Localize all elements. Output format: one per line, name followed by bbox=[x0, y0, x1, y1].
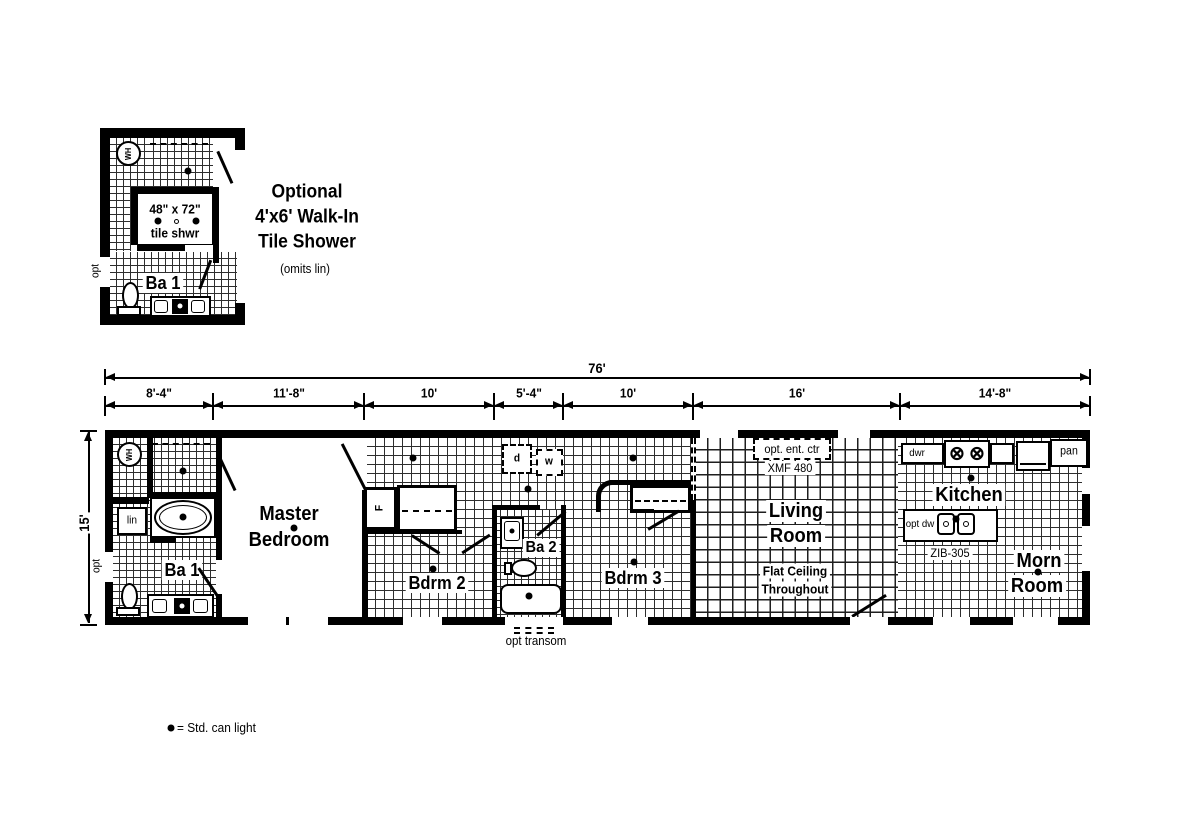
window bbox=[403, 617, 442, 625]
sink-drain-icon bbox=[963, 521, 969, 527]
inset-shower-size-label: 48" x 72" bbox=[147, 202, 204, 217]
wall bbox=[100, 128, 245, 138]
opt-label: opt bbox=[92, 557, 103, 575]
shower-curtain-dashed-line bbox=[152, 443, 210, 445]
dim-height-label: 15' bbox=[77, 512, 91, 533]
inset-subtitle: (omits lin) bbox=[277, 262, 332, 277]
pan-label: pan bbox=[1057, 445, 1080, 459]
window bbox=[1082, 526, 1090, 571]
dim-segment-label-7: 14'-8" bbox=[976, 386, 1014, 401]
optional-wall-opening bbox=[691, 438, 696, 500]
window bbox=[838, 430, 870, 438]
can-light-dot bbox=[953, 516, 960, 523]
tub-icon bbox=[500, 584, 562, 614]
wall bbox=[630, 509, 654, 513]
master-bedroom-label-1: Master bbox=[257, 503, 322, 525]
refrigerator-door-line bbox=[1020, 463, 1046, 465]
dim-arrow bbox=[553, 401, 562, 409]
window bbox=[1082, 468, 1090, 494]
can-light-dot bbox=[193, 218, 200, 225]
dim-arrow bbox=[495, 401, 504, 409]
can-light-dot-inverse bbox=[180, 604, 185, 609]
dim-tick bbox=[1089, 369, 1091, 385]
shower-drain-icon bbox=[174, 219, 179, 224]
closet-rod-dashed-line bbox=[402, 510, 452, 512]
can-light-dot bbox=[185, 168, 192, 175]
xmf-model-label: XMF 480 bbox=[765, 461, 815, 475]
can-light-dot bbox=[180, 468, 187, 475]
inset-ba1-room-label: Ba 1 bbox=[143, 273, 184, 293]
can-light-dot-inverse bbox=[178, 304, 183, 309]
inset-title-line-1: Optional bbox=[269, 182, 345, 203]
dim-arrow bbox=[890, 401, 899, 409]
morn-room-label-2: Room bbox=[1008, 575, 1066, 597]
door-swing bbox=[217, 151, 234, 184]
can-light-dot bbox=[525, 486, 532, 493]
bdrm3-room-label: Bdrm 3 bbox=[602, 568, 665, 588]
opt-door-opening bbox=[105, 550, 113, 584]
dim-arrow bbox=[1080, 373, 1089, 381]
wall bbox=[147, 438, 153, 492]
wall bbox=[150, 538, 176, 543]
wh-label: WH bbox=[126, 447, 134, 463]
refrigerator-icon bbox=[1016, 441, 1050, 471]
dim-overall-label: 76' bbox=[586, 360, 609, 376]
entry-door-opening bbox=[850, 617, 888, 625]
washer-label: w bbox=[542, 456, 555, 469]
range-burner-icon: ⊗ bbox=[949, 445, 965, 464]
dim-arrow bbox=[354, 401, 363, 409]
can-light-legend-label: = Std. can light bbox=[177, 722, 256, 735]
toilet-icon bbox=[121, 583, 138, 610]
can-light-legend-dot bbox=[168, 725, 175, 732]
dim-arrow bbox=[484, 401, 493, 409]
range-burner-icon: ⊗ bbox=[969, 445, 985, 464]
window bbox=[505, 617, 563, 625]
can-light-dot bbox=[968, 475, 975, 482]
wall bbox=[213, 187, 219, 263]
dim-arrow bbox=[203, 401, 212, 409]
dim-segment-label-4: 5'-4" bbox=[513, 386, 544, 401]
inset-opt-door-opening bbox=[100, 255, 110, 289]
toilet-icon bbox=[511, 559, 537, 577]
window bbox=[933, 617, 970, 625]
wall bbox=[100, 128, 110, 325]
master-bedroom-label-2: Bedroom bbox=[246, 529, 332, 551]
toilet-icon bbox=[122, 282, 139, 309]
sink-icon bbox=[193, 599, 208, 613]
wall bbox=[235, 128, 245, 150]
bdrm2-room-label: Bdrm 2 bbox=[406, 573, 469, 593]
dim-arrow bbox=[683, 401, 692, 409]
dim-tick bbox=[80, 624, 97, 626]
wall bbox=[492, 505, 540, 510]
sink-drain-icon bbox=[943, 521, 949, 527]
sink-icon bbox=[152, 599, 167, 613]
dim-arrow bbox=[106, 401, 115, 409]
zib-model-label: ZIB-305 bbox=[928, 546, 973, 560]
dim-segment-label-1: 8'-4" bbox=[143, 386, 174, 401]
transom-dashed-line bbox=[514, 627, 554, 629]
kitchen-counter bbox=[990, 443, 1014, 464]
inset-opt-label: opt bbox=[91, 262, 102, 280]
sink-icon bbox=[154, 300, 168, 313]
shower-curtain-dashed-line bbox=[150, 143, 208, 145]
inset-hall-tile-strip bbox=[110, 194, 131, 251]
window bbox=[612, 617, 648, 625]
dim-arrow bbox=[901, 401, 910, 409]
can-light-dot bbox=[631, 559, 638, 566]
dim-arrow bbox=[1080, 401, 1089, 409]
wall bbox=[235, 303, 245, 325]
window bbox=[1013, 617, 1058, 625]
lin-label: lin bbox=[124, 515, 140, 528]
inset-shower-tile-floor bbox=[147, 138, 213, 189]
can-light-dot bbox=[630, 455, 637, 462]
inset-shower-type-label: tile shwr bbox=[148, 226, 202, 241]
dim-arrow bbox=[106, 373, 115, 381]
opt-dw-label: opt dw bbox=[903, 518, 937, 531]
dim-segment-label-5: 10' bbox=[617, 386, 639, 401]
dim-arrow bbox=[84, 614, 92, 623]
inset-wh-label: WH bbox=[125, 146, 133, 162]
wall bbox=[492, 510, 497, 617]
window bbox=[248, 617, 286, 625]
wall bbox=[691, 500, 696, 617]
curved-wall bbox=[596, 480, 616, 512]
window bbox=[700, 430, 738, 438]
sink-icon bbox=[191, 300, 205, 313]
ba1-room-label: Ba 1 bbox=[162, 560, 203, 580]
wall bbox=[137, 245, 185, 251]
dim-segment-label-6: 16' bbox=[786, 386, 808, 401]
living-note-label-2: Throughout bbox=[759, 582, 832, 597]
dim-tick bbox=[1089, 396, 1091, 416]
ba2-room-label: Ba 2 bbox=[523, 539, 560, 557]
dwr-label: dwr bbox=[906, 447, 927, 460]
living-room-label-1: Living bbox=[766, 500, 826, 522]
can-light-dot bbox=[180, 514, 187, 521]
can-light-dot bbox=[526, 593, 533, 600]
dim-segment-label-2: 11'-8" bbox=[270, 386, 307, 401]
closet-rod-dashed-line bbox=[635, 500, 686, 502]
dim-arrow bbox=[564, 401, 573, 409]
can-light-dot bbox=[291, 525, 298, 532]
inset-title-line-3: Tile Shower bbox=[255, 232, 358, 253]
dim-segment-label-3: 10' bbox=[418, 386, 440, 401]
can-light-dot bbox=[430, 566, 437, 573]
dim-line-overall bbox=[105, 377, 1090, 379]
window bbox=[289, 617, 328, 625]
dryer-label: d bbox=[511, 453, 523, 466]
furnace-label: F bbox=[375, 503, 386, 513]
inset-title-line-2: 4'x6' Walk-In bbox=[252, 207, 361, 228]
bdrm2-closet bbox=[397, 485, 457, 532]
can-light-dot bbox=[1035, 569, 1042, 576]
dim-arrow bbox=[214, 401, 223, 409]
can-light-dot bbox=[410, 455, 417, 462]
living-note-label-1: Flat Ceiling bbox=[760, 564, 830, 579]
dim-arrow bbox=[84, 432, 92, 441]
dim-arrow bbox=[365, 401, 374, 409]
toilet-tank bbox=[116, 607, 140, 616]
dim-line-segments bbox=[105, 405, 1090, 407]
dim-arrow bbox=[694, 401, 703, 409]
wall bbox=[113, 497, 149, 504]
kitchen-label: Kitchen bbox=[933, 484, 1006, 506]
floor-plan-page: opt WH 48" x 72" tile shwr Ba 1 Optional… bbox=[0, 0, 1200, 818]
can-light-dot bbox=[155, 218, 162, 225]
faucet-dot bbox=[510, 529, 515, 534]
opt-ent-ctr-label: opt. ent. ctr bbox=[762, 442, 823, 456]
opt-transom-label: opt transom bbox=[503, 634, 569, 649]
toilet-tank bbox=[117, 306, 141, 316]
living-room-label-2: Room bbox=[767, 525, 825, 547]
